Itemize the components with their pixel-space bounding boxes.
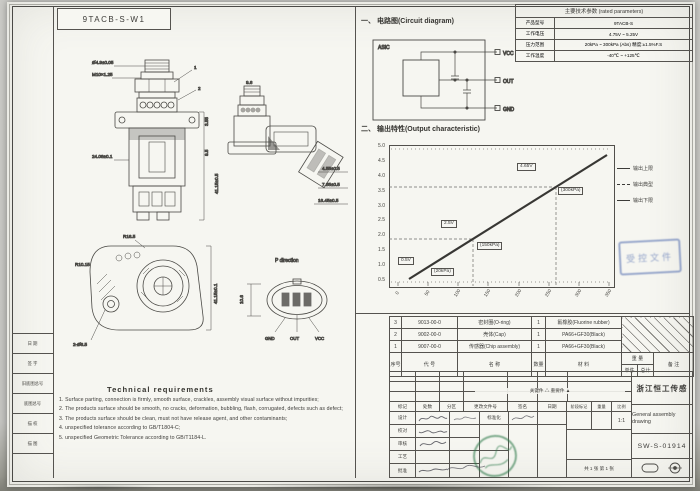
signature-cell xyxy=(415,411,450,425)
signature-scribble xyxy=(418,466,448,475)
bom-no: 3 xyxy=(390,317,402,329)
legend-item: 输出典型 xyxy=(617,181,653,188)
leader-number: 2 xyxy=(198,86,201,91)
drawing-title: General assembly drawing xyxy=(631,404,693,434)
chart-plot-svg xyxy=(389,145,613,286)
stage-mark-value xyxy=(566,411,592,430)
dim-label: Ø4.9±0.05 xyxy=(92,60,114,65)
legend-label: 输出典型 xyxy=(633,181,653,188)
dim-label: 16.45±0.5 xyxy=(318,198,339,203)
right-panel-divider xyxy=(355,313,689,314)
margin-registration-table: 日 期 签 字 旧底图总号 底图总号 描 校 描 图 xyxy=(12,333,53,479)
chart-annotation: 2.5V xyxy=(441,220,457,228)
dim-label: 10.6 xyxy=(239,295,244,304)
y-tick: 1.5 xyxy=(359,247,385,253)
bom-name: 壳体(Cap) xyxy=(458,329,532,341)
blank-cell xyxy=(566,429,632,460)
front-view-drawing: Ø4.9±0.05 M10×1.25 24.08±0.1 3.55 9.5 41… xyxy=(92,54,222,229)
legend-line-sample xyxy=(617,200,630,201)
signature-scribble xyxy=(511,414,535,422)
controlled-document-stamp: 受控文件 xyxy=(618,238,682,275)
bom-no: 2 xyxy=(390,329,402,341)
tech-requirement-item: 3. The products surface should be clean,… xyxy=(59,415,359,424)
chip-label: ASIC xyxy=(378,45,390,51)
legend-item: 输出上限 xyxy=(617,165,653,172)
param-value: -40℃ ~ +125℃ xyxy=(554,50,693,62)
legend-line-sample xyxy=(617,168,630,169)
dim-label: R10.15 xyxy=(75,262,90,267)
scale-value: 1:1 xyxy=(611,411,632,430)
chart-annotation: (150kPa) xyxy=(477,242,502,250)
margin-row xyxy=(12,454,53,478)
projection-symbols-cell xyxy=(631,458,693,478)
legend-item: 输出下限 xyxy=(617,197,653,204)
bom-material: 氟橡胶(Fluorine rubber) xyxy=(546,317,622,329)
bom-row: 3 9013-00-0 密封圈(O-ring) 1 氟橡胶(Fluorine r… xyxy=(390,317,694,329)
terminal-label: VCC xyxy=(503,51,514,57)
key-parts-note: 关键件 △ 重要件 ▲ xyxy=(475,388,625,394)
y-tick: 3.5 xyxy=(359,188,385,194)
date-scribble xyxy=(453,415,477,422)
scan-smudge xyxy=(240,484,570,490)
y-tick: 2.5 xyxy=(359,217,385,223)
signature-scribble xyxy=(418,414,448,423)
top-view-drawing: R16.5 R10.15 41.15±0.1 2-Ø6.5 xyxy=(71,230,226,350)
bom-code: 9007-00-0 xyxy=(402,341,458,353)
bom-unused-cells xyxy=(622,317,694,353)
margin-row: 描 图 xyxy=(12,434,53,454)
part-number-box: 9TACB-S-W1 xyxy=(57,8,171,30)
bom-qty: 1 xyxy=(532,341,546,353)
side-view-drawing: 9.6 4.55±0.5 7.85±0.5 16.45±0.5 xyxy=(222,80,357,228)
chart-annotation: (20kPa) xyxy=(431,268,454,276)
change-record-grid xyxy=(389,371,631,401)
terminal-label: GND xyxy=(503,107,515,113)
chart-annotation: 0.5V xyxy=(398,257,414,265)
tech-requirement-item: 5. unspecified Geometric Tolerance accor… xyxy=(59,434,359,443)
part-number: 9TACB-S-W1 xyxy=(83,15,146,24)
signature-scribble xyxy=(418,440,448,449)
signature-cell xyxy=(415,424,450,438)
y-tick: 0.5 xyxy=(359,277,385,283)
sheet-count: 共 1 张 第 1 张 xyxy=(566,459,632,478)
legend-label: 输出上限 xyxy=(633,165,653,172)
date-cell xyxy=(449,411,480,425)
drawing-number: SW-S-01914 xyxy=(631,433,693,459)
pin-label: OUT xyxy=(290,336,299,341)
p-direction-view: P direction 10.6 GND OUT VCC xyxy=(237,252,349,347)
dim-label: 41.15±0.1 xyxy=(213,283,218,304)
param-label: 工作温度 xyxy=(515,50,555,62)
y-tick: 1.0 xyxy=(359,262,385,268)
stamp-text: 受控文件 xyxy=(626,249,675,264)
margin-row: 描 校 xyxy=(12,414,53,434)
drawing-sheet: 9TACB-S-W1 日 期 签 字 旧底图总号 底图总号 描 校 描 图 xyxy=(7,2,695,487)
dim-label: 7.85±0.5 xyxy=(322,182,340,187)
y-tick: 4.5 xyxy=(359,158,385,164)
terminal-label: OUT xyxy=(503,79,514,85)
dim-label: 24.08±0.1 xyxy=(92,154,113,159)
scanned-engineering-drawing: 9TACB-S-W1 日 期 签 字 旧底图总号 底图总号 描 校 描 图 xyxy=(0,0,700,491)
signature-scribble xyxy=(418,427,448,436)
weight-value xyxy=(591,411,612,430)
bom-header-weight: 重 量 xyxy=(622,353,654,365)
dim-label: 41.15±0.5 xyxy=(214,173,219,194)
parameters-title: 主要技术参数 (rated parameters) xyxy=(515,4,693,18)
leader-number: 1 xyxy=(194,65,197,70)
parameters-table: 主要技术参数 (rated parameters) 产品型号 9TACB-S 工… xyxy=(515,4,693,62)
left-margin-divider xyxy=(53,7,54,478)
bom-qty: 1 xyxy=(532,329,546,341)
dim-label: M10×1.25 xyxy=(92,72,113,77)
dim-label: R16.5 xyxy=(123,234,136,239)
green-seal-stamp xyxy=(467,428,524,485)
sig-role: 审核 xyxy=(389,437,416,451)
scan-smudge xyxy=(40,485,160,490)
chart-annotation: 4.65V xyxy=(517,163,536,171)
sig-role: 校对 xyxy=(389,424,416,438)
view-label: P direction xyxy=(275,258,299,264)
y-tick: 4.0 xyxy=(359,173,385,179)
dim-label: 4.55±0.5 xyxy=(322,166,340,171)
pin-label: VCC xyxy=(315,336,324,341)
pin-label: GND xyxy=(265,336,275,341)
signature-cell xyxy=(508,411,538,425)
bom-no: 1 xyxy=(390,341,402,353)
bom-header-row: 序号 代 号 名 称 数量 材 料 重 量 备 注 xyxy=(390,353,694,365)
bom-material: PA66+GF30(Black) xyxy=(546,341,622,353)
handwritten-mark xyxy=(445,462,487,474)
tech-requirement-item: 2. The products surface should be smooth… xyxy=(59,405,359,414)
y-tick: 3.0 xyxy=(359,203,385,209)
tech-requirement-item: 1. Surface parting, connection is firmly… xyxy=(59,396,359,405)
legend-label: 输出下限 xyxy=(633,197,653,204)
blank-cell xyxy=(537,424,567,478)
sig-role: 工艺 xyxy=(389,450,416,464)
bom-name: 传感器(Chip assembly) xyxy=(458,341,532,353)
chart-section-heading: 二、 输出特性(Output characteristic) xyxy=(361,124,480,134)
bom-name: 密封圈(O-ring) xyxy=(458,317,532,329)
date-cell xyxy=(537,411,567,425)
circuit-section-heading: 一、 电路图(Circuit diagram) xyxy=(361,16,454,26)
signature-cell xyxy=(415,437,450,451)
standardization-label: 标准化 xyxy=(479,411,509,425)
bom-table: 3 9013-00-0 密封圈(O-ring) 1 氟橡胶(Fluorine r… xyxy=(389,316,694,377)
tech-requirements-heading: Technical requirements xyxy=(107,385,214,394)
output-curve xyxy=(409,155,607,279)
bom-qty: 1 xyxy=(532,317,546,329)
margin-row: 签 字 xyxy=(12,354,53,374)
y-tick: 2.0 xyxy=(359,232,385,238)
projection-symbol-icon xyxy=(638,461,686,475)
legend-line-sample xyxy=(617,184,630,185)
dim-label: 9.6 xyxy=(246,80,253,85)
chart-annotation: (300kPa) xyxy=(558,187,583,195)
tech-requirement-item: 4. unspecified tolerance according to GB… xyxy=(59,424,359,433)
margin-row: 旧底图总号 xyxy=(12,374,53,394)
sig-role: 设计 xyxy=(389,411,416,425)
tech-requirements-list: 1. Surface parting, connection is firmly… xyxy=(59,396,359,443)
bom-code: 9013-00-0 xyxy=(402,317,458,329)
sig-role: 批准 xyxy=(389,463,416,478)
company-name: 浙江恒工传感 xyxy=(631,371,693,405)
margin-row: 底图总号 xyxy=(12,394,53,414)
margin-row: 日 期 xyxy=(12,334,53,354)
bom-code: 9002-00-0 xyxy=(402,329,458,341)
bom-material: PA66+GF30(Black) xyxy=(546,329,622,341)
dim-label: 3.55 xyxy=(204,117,209,126)
circuit-diagram: ASIC VCC OUT GND xyxy=(367,32,519,128)
y-tick: 5.0 xyxy=(359,143,385,149)
dim-label: 9.5 xyxy=(204,149,209,156)
dim-label: 2-Ø6.5 xyxy=(73,342,87,347)
